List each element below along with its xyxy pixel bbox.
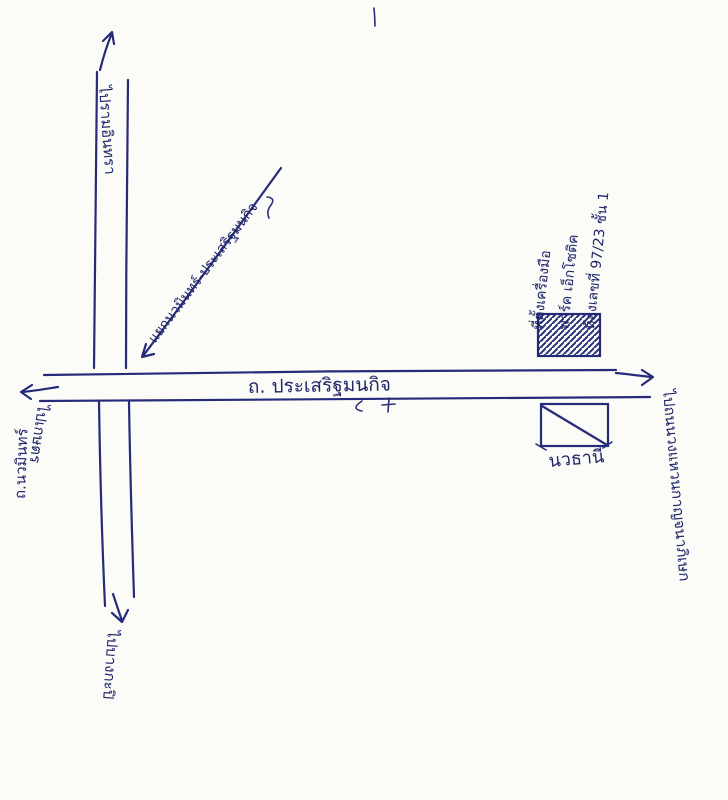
hand-drawn-map: ถ. ประเสริฐมนกิจ ถ.นวมินทร์ แยกนวมินทร์-…: [0, 0, 728, 800]
vertical-road-label: ถ.นวมินทร์: [11, 428, 31, 499]
road-label-tick-mark: [382, 398, 395, 412]
vertical-road-upper-left-line: [94, 72, 97, 368]
stray-pen-mark: [374, 8, 375, 26]
map-sketch: ถ. ประเสริฐมนกิจ ถ.นวมินทร์ แยกนวมินทร์-…: [0, 0, 728, 800]
destination-east-label: ไปถนนวงแหวนกาญจนาภิเษก: [659, 388, 694, 582]
vertical-road-lower-left-line: [99, 401, 105, 606]
junction-flourish-mark: [267, 197, 273, 218]
vertical-road-lower-right-line: [129, 401, 134, 597]
landmark-label: นวธานี: [548, 446, 605, 472]
junction-label: แยกนวมินทร์-ประเสริฐมนกิจ: [145, 199, 262, 346]
horizontal-road-label: ถ. ประเสริฐมนกิจ: [248, 374, 391, 398]
horizontal-road-bottom-line: [40, 397, 650, 401]
landmark-box-diagonal: [542, 406, 607, 445]
site-note-line3: ห้องเลขที่ 97/23 ชั้น 1: [579, 191, 612, 331]
vertical-road-upper-right-line: [126, 80, 128, 368]
road-label-underline-curl: [356, 401, 362, 411]
destination-north-label: ไปรามอินทรา: [95, 84, 119, 175]
destination-south-label: ไปบางกะปิ: [99, 629, 122, 700]
